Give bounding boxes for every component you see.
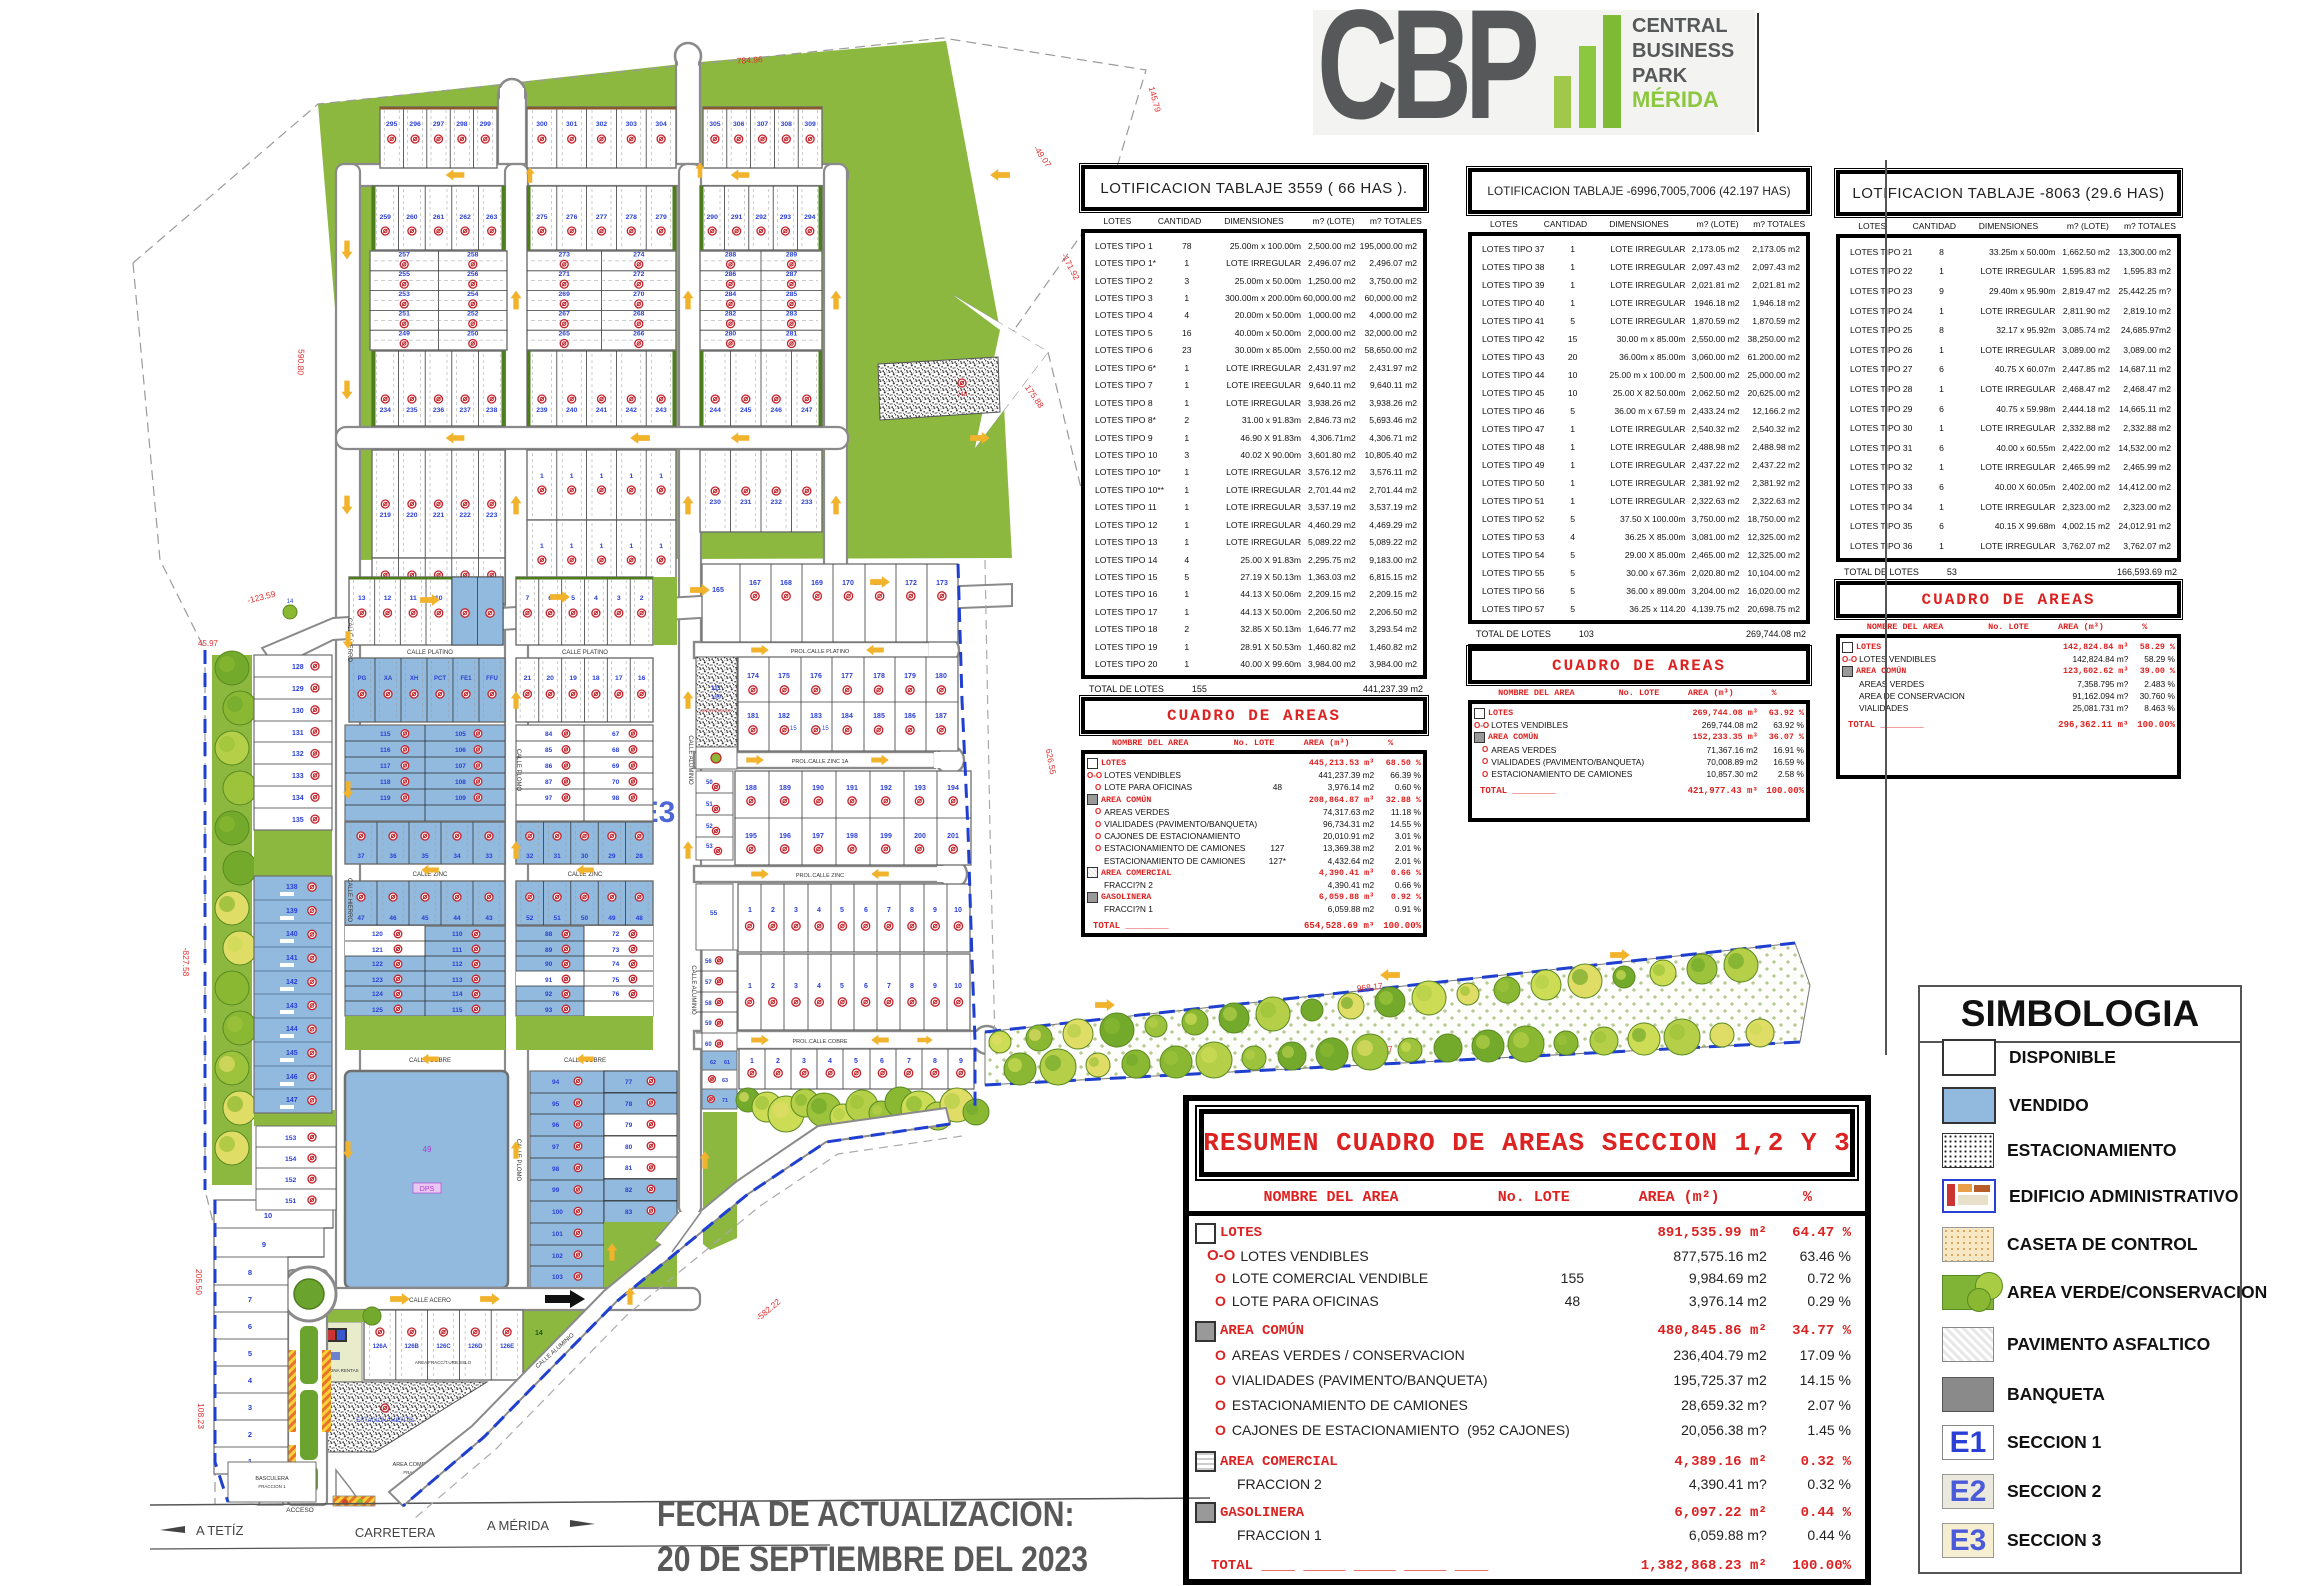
svg-text:51: 51 xyxy=(553,915,561,922)
svg-text:293: 293 xyxy=(780,214,792,221)
svg-text:1: 1 xyxy=(748,907,752,914)
svg-text:151: 151 xyxy=(285,1198,297,1205)
svg-text:276: 276 xyxy=(566,214,578,221)
svg-text:93: 93 xyxy=(545,1007,553,1014)
svg-text:105: 105 xyxy=(455,731,466,738)
svg-text:81: 81 xyxy=(625,1165,633,1172)
svg-text:248: 248 xyxy=(957,391,968,398)
svg-text:183: 183 xyxy=(810,713,822,720)
svg-text:261: 261 xyxy=(433,214,445,221)
svg-text:255: 255 xyxy=(399,271,411,278)
svg-text:283: 283 xyxy=(786,311,798,318)
svg-text:FE1: FE1 xyxy=(460,676,472,682)
svg-text:BASCULERA: BASCULERA xyxy=(255,1476,289,1482)
svg-text:CALLE PLATINO: CALLE PLATINO xyxy=(407,650,453,656)
svg-text:89: 89 xyxy=(545,947,553,954)
svg-text:135: 135 xyxy=(292,817,304,824)
svg-text:31: 31 xyxy=(553,853,561,860)
svg-text:175: 175 xyxy=(778,673,790,680)
svg-text:6: 6 xyxy=(880,1058,884,1065)
svg-text:265: 265 xyxy=(559,331,571,338)
svg-text:243: 243 xyxy=(655,407,667,414)
svg-text:252: 252 xyxy=(467,311,479,318)
svg-text:92: 92 xyxy=(545,991,553,998)
svg-text:1: 1 xyxy=(629,473,633,480)
svg-text:125: 125 xyxy=(372,1007,383,1014)
svg-text:59: 59 xyxy=(705,1021,712,1027)
svg-text:CALLE ZINC: CALLE ZINC xyxy=(413,872,448,878)
svg-text:237: 237 xyxy=(459,407,471,414)
svg-text:35: 35 xyxy=(421,853,429,860)
svg-text:75: 75 xyxy=(612,977,620,984)
svg-text:128: 128 xyxy=(292,664,304,671)
svg-text:8: 8 xyxy=(933,1058,937,1065)
svg-text:78: 78 xyxy=(625,1101,633,1108)
svg-text:PROL.CALLE ZINC 1A: PROL.CALLE ZINC 1A xyxy=(792,759,849,765)
svg-text:242: 242 xyxy=(626,407,638,414)
svg-text:250: 250 xyxy=(467,331,479,338)
svg-text:269: 269 xyxy=(559,291,571,298)
svg-text:126A: 126A xyxy=(373,1344,388,1350)
svg-text:CALLE HIERRO: CALLE HIERRO xyxy=(346,878,352,922)
svg-text:1: 1 xyxy=(659,473,663,480)
svg-text:2: 2 xyxy=(776,1058,780,1065)
svg-text:273: 273 xyxy=(559,251,571,258)
svg-text:176: 176 xyxy=(810,673,822,680)
svg-text:1: 1 xyxy=(600,543,604,550)
svg-text:186: 186 xyxy=(904,713,916,720)
svg-text:188: 188 xyxy=(745,785,757,792)
svg-text:14: 14 xyxy=(535,1330,543,1337)
svg-text:17: 17 xyxy=(615,675,623,682)
svg-text:56: 56 xyxy=(705,959,712,965)
svg-text:198: 198 xyxy=(846,833,858,840)
svg-text:49: 49 xyxy=(423,1145,432,1154)
svg-text:30: 30 xyxy=(581,853,589,860)
svg-text:49: 49 xyxy=(608,915,616,922)
svg-text:7: 7 xyxy=(907,1058,911,1065)
svg-text:ACCESO: ACCESO xyxy=(286,1507,313,1514)
svg-text:34: 34 xyxy=(453,853,461,860)
svg-text:201: 201 xyxy=(947,833,959,840)
svg-text:294: 294 xyxy=(804,214,816,221)
svg-text:36: 36 xyxy=(389,853,397,860)
svg-text:PCT: PCT xyxy=(434,676,446,682)
svg-text:220: 220 xyxy=(406,512,418,519)
svg-text:CALLE PLOMO: CALLE PLOMO xyxy=(515,749,521,792)
svg-text:244: 244 xyxy=(710,407,722,414)
svg-text:14: 14 xyxy=(287,599,294,605)
svg-text:260: 260 xyxy=(406,214,418,221)
svg-text:108.23: 108.23 xyxy=(196,1403,206,1429)
svg-text:297: 297 xyxy=(433,121,445,128)
svg-text:9: 9 xyxy=(959,1058,963,1065)
svg-text:PG: PG xyxy=(358,676,367,682)
svg-text:67: 67 xyxy=(612,731,620,738)
svg-text:173: 173 xyxy=(936,580,948,587)
svg-text:3: 3 xyxy=(794,907,798,914)
svg-text:784.96: 784.96 xyxy=(736,54,763,66)
svg-text:60: 60 xyxy=(705,1042,712,1048)
svg-text:278: 278 xyxy=(626,214,638,221)
svg-text:10: 10 xyxy=(954,983,962,990)
svg-text:-827.58: -827.58 xyxy=(181,948,191,977)
svg-text:5: 5 xyxy=(571,595,575,602)
svg-text:4: 4 xyxy=(594,595,598,602)
svg-text:133: 133 xyxy=(292,773,304,780)
svg-text:280: 280 xyxy=(725,331,737,338)
svg-text:235: 235 xyxy=(406,407,418,414)
svg-text:52: 52 xyxy=(526,915,534,922)
svg-text:154: 154 xyxy=(285,1156,297,1163)
svg-text:299: 299 xyxy=(480,121,492,128)
svg-text:7: 7 xyxy=(248,1295,252,1304)
svg-text:58: 58 xyxy=(705,1001,712,1007)
svg-text:287: 287 xyxy=(786,271,798,278)
svg-text:167: 167 xyxy=(749,580,761,587)
svg-text:192: 192 xyxy=(880,785,892,792)
svg-text:101: 101 xyxy=(552,1231,563,1238)
svg-text:295: 295 xyxy=(386,121,398,128)
svg-text:4: 4 xyxy=(817,983,821,990)
svg-text:53: 53 xyxy=(706,844,713,850)
svg-text:97: 97 xyxy=(545,795,553,802)
svg-text:138: 138 xyxy=(286,884,298,891)
svg-text:130: 130 xyxy=(292,708,304,715)
svg-text:286: 286 xyxy=(725,271,737,278)
svg-text:1: 1 xyxy=(600,473,604,480)
svg-text:47: 47 xyxy=(357,915,365,922)
svg-text:170: 170 xyxy=(842,580,854,587)
svg-text:111: 111 xyxy=(711,685,722,692)
svg-text:1: 1 xyxy=(629,543,633,550)
svg-text:241: 241 xyxy=(596,407,608,414)
svg-text:18: 18 xyxy=(592,675,600,682)
svg-text:1: 1 xyxy=(748,983,752,990)
svg-text:3: 3 xyxy=(617,595,621,602)
svg-text:251: 251 xyxy=(399,311,411,318)
svg-text:309: 309 xyxy=(804,121,816,128)
svg-text:107: 107 xyxy=(455,763,466,770)
svg-text:139: 139 xyxy=(286,908,298,915)
svg-text:177: 177 xyxy=(841,673,853,680)
svg-text:79: 79 xyxy=(625,1122,633,1129)
svg-text:80: 80 xyxy=(625,1144,633,1151)
svg-text:2: 2 xyxy=(771,983,775,990)
svg-text:279: 279 xyxy=(655,214,667,221)
svg-text:50: 50 xyxy=(581,915,589,922)
svg-text:8: 8 xyxy=(910,907,914,914)
svg-text:6: 6 xyxy=(248,1322,252,1331)
svg-text:6: 6 xyxy=(864,907,868,914)
svg-text:8: 8 xyxy=(910,983,914,990)
svg-text:103: 103 xyxy=(552,1274,563,1281)
svg-text:292: 292 xyxy=(755,214,767,221)
svg-text:62: 62 xyxy=(710,1060,716,1066)
svg-text:126E: 126E xyxy=(500,1344,514,1350)
svg-text:71: 71 xyxy=(722,1098,728,1104)
svg-text:73: 73 xyxy=(612,947,620,954)
svg-text:3: 3 xyxy=(248,1403,252,1412)
svg-text:219: 219 xyxy=(380,512,392,519)
svg-text:230: 230 xyxy=(710,499,722,506)
svg-text:205.50: 205.50 xyxy=(194,1269,204,1295)
svg-text:20: 20 xyxy=(546,675,554,682)
svg-text:33: 33 xyxy=(485,853,493,860)
svg-text:13: 13 xyxy=(358,595,366,602)
svg-text:189: 189 xyxy=(779,785,791,792)
svg-text:123: 123 xyxy=(372,977,383,984)
svg-text:284: 284 xyxy=(725,291,737,298)
svg-text:48: 48 xyxy=(636,915,644,922)
svg-text:63: 63 xyxy=(722,1078,728,1084)
svg-text:153: 153 xyxy=(285,1135,297,1142)
svg-text:111: 111 xyxy=(452,947,463,954)
svg-text:221: 221 xyxy=(433,512,445,519)
svg-text:16: 16 xyxy=(638,675,646,682)
svg-text:196: 196 xyxy=(779,833,791,840)
svg-text:12: 12 xyxy=(384,595,392,602)
svg-text:CARRETERA: CARRETERA xyxy=(355,1525,436,1540)
svg-text:134: 134 xyxy=(292,795,304,802)
svg-text:83: 83 xyxy=(625,1209,633,1216)
svg-text:1: 1 xyxy=(540,543,544,550)
svg-text:285: 285 xyxy=(786,291,798,298)
svg-text:191: 191 xyxy=(846,785,858,792)
svg-text:290: 290 xyxy=(707,214,719,221)
svg-text:102: 102 xyxy=(552,1253,563,1260)
svg-text:223: 223 xyxy=(486,512,498,519)
svg-text:109: 109 xyxy=(455,795,466,802)
svg-text:6: 6 xyxy=(864,983,868,990)
svg-text:263: 263 xyxy=(486,214,498,221)
svg-text:246: 246 xyxy=(771,407,783,414)
svg-text:15: 15 xyxy=(790,726,797,732)
svg-text:1: 1 xyxy=(540,473,544,480)
svg-text:4: 4 xyxy=(828,1058,832,1065)
svg-text:32: 32 xyxy=(526,853,534,860)
svg-text:1: 1 xyxy=(570,473,574,480)
svg-text:185: 185 xyxy=(873,713,885,720)
svg-text:45: 45 xyxy=(421,915,429,922)
svg-text:72: 72 xyxy=(612,931,620,938)
svg-text:110: 110 xyxy=(452,931,463,938)
svg-text:200: 200 xyxy=(914,833,926,840)
svg-text:124: 124 xyxy=(372,991,383,998)
svg-text:288: 288 xyxy=(725,251,737,258)
svg-text:2: 2 xyxy=(248,1430,252,1439)
svg-text:10: 10 xyxy=(264,1211,272,1220)
svg-text:CALLE ACERO: CALLE ACERO xyxy=(409,1298,451,1304)
svg-text:122: 122 xyxy=(372,961,383,968)
svg-text:21: 21 xyxy=(524,675,532,682)
svg-text:84: 84 xyxy=(545,731,553,738)
svg-text:55: 55 xyxy=(710,910,718,917)
svg-text:247: 247 xyxy=(801,407,813,414)
svg-text:222: 222 xyxy=(459,512,471,519)
svg-text:CALLE ZINC: CALLE ZINC xyxy=(568,872,603,878)
svg-text:296: 296 xyxy=(409,121,421,128)
svg-text:43: 43 xyxy=(485,915,493,922)
svg-text:172: 172 xyxy=(905,580,917,587)
svg-text:178: 178 xyxy=(873,673,885,680)
svg-text:FFU: FFU xyxy=(486,676,498,682)
svg-text:112: 112 xyxy=(452,961,463,968)
svg-text:182: 182 xyxy=(778,713,790,720)
svg-text:119: 119 xyxy=(380,795,391,802)
svg-text:281: 281 xyxy=(786,331,798,338)
svg-text:115: 115 xyxy=(380,731,391,738)
svg-text:29: 29 xyxy=(608,853,616,860)
svg-text:XH: XH xyxy=(410,676,418,682)
svg-text:9: 9 xyxy=(933,983,937,990)
svg-text:306: 306 xyxy=(733,121,745,128)
svg-text:234: 234 xyxy=(380,407,392,414)
svg-text:268: 268 xyxy=(633,311,645,318)
svg-text:7: 7 xyxy=(887,907,891,914)
svg-text:90: 90 xyxy=(545,961,553,968)
svg-text:274: 274 xyxy=(633,251,645,258)
svg-text:142: 142 xyxy=(286,979,298,986)
svg-text:PROL.CALLE COBRE: PROL.CALLE COBRE xyxy=(792,1039,847,1045)
svg-text:15: 15 xyxy=(822,726,829,732)
svg-text:152: 152 xyxy=(285,1177,297,1184)
svg-text:254: 254 xyxy=(467,291,479,298)
svg-text:145: 145 xyxy=(286,1050,298,1057)
svg-text:190: 190 xyxy=(812,785,824,792)
svg-text:106: 106 xyxy=(455,747,466,754)
svg-text:129: 129 xyxy=(292,686,304,693)
svg-text:98: 98 xyxy=(612,795,620,802)
svg-text:5: 5 xyxy=(840,907,844,914)
svg-text:116: 116 xyxy=(380,747,391,754)
svg-text:99: 99 xyxy=(552,1187,560,1194)
svg-text:95: 95 xyxy=(552,1101,560,1108)
svg-text:258: 258 xyxy=(467,251,479,258)
svg-text:291: 291 xyxy=(731,214,743,221)
svg-text:275: 275 xyxy=(536,214,548,221)
svg-text:3: 3 xyxy=(794,983,798,990)
svg-text:5: 5 xyxy=(854,1058,858,1065)
svg-text:CALLE ALUMINIO: CALLE ALUMINIO xyxy=(690,965,696,1015)
svg-text:245: 245 xyxy=(740,407,752,414)
svg-text:289: 289 xyxy=(786,251,798,258)
svg-text:9: 9 xyxy=(262,1240,266,1249)
svg-text:19: 19 xyxy=(569,675,577,682)
svg-text:233: 233 xyxy=(801,499,813,506)
svg-text:8: 8 xyxy=(248,1268,252,1277)
svg-text:305: 305 xyxy=(709,121,721,128)
svg-text:2: 2 xyxy=(640,595,644,602)
svg-text:PROL.CALLE ZINC: PROL.CALLE ZINC xyxy=(796,873,844,879)
svg-text:298: 298 xyxy=(456,121,468,128)
svg-text:270: 270 xyxy=(633,291,645,298)
svg-text:85: 85 xyxy=(545,747,553,754)
svg-text:147: 147 xyxy=(286,1097,298,1104)
svg-text:180: 180 xyxy=(935,673,947,680)
svg-text:1: 1 xyxy=(750,1058,754,1065)
svg-text:108: 108 xyxy=(455,779,466,786)
svg-text:68: 68 xyxy=(612,747,620,754)
svg-text:PROL.CALLE PLATINO: PROL.CALLE PLATINO xyxy=(791,649,850,655)
svg-text:199: 199 xyxy=(711,695,722,701)
svg-text:169: 169 xyxy=(811,580,823,587)
svg-text:304: 304 xyxy=(655,121,667,128)
svg-text:1: 1 xyxy=(570,543,574,550)
svg-text:69: 69 xyxy=(612,763,620,770)
svg-text:121: 121 xyxy=(372,947,383,954)
svg-text:9: 9 xyxy=(933,907,937,914)
svg-text:AREA FRACC/T.URB.SSLO: AREA FRACC/T.URB.SSLO xyxy=(415,1360,472,1365)
svg-text:10: 10 xyxy=(954,907,962,914)
svg-text:74: 74 xyxy=(612,961,620,968)
svg-text:590.80: 590.80 xyxy=(296,349,307,376)
svg-text:193: 193 xyxy=(914,785,926,792)
svg-text:2: 2 xyxy=(771,907,775,914)
svg-text:308: 308 xyxy=(781,121,793,128)
svg-text:114: 114 xyxy=(452,991,463,998)
svg-text:45.97: 45.97 xyxy=(198,639,219,648)
svg-text:238: 238 xyxy=(486,407,498,414)
svg-text:3: 3 xyxy=(802,1058,806,1065)
svg-text:98: 98 xyxy=(552,1166,560,1173)
svg-text:272: 272 xyxy=(633,271,645,278)
svg-text:120: 120 xyxy=(372,931,383,938)
svg-text:88: 88 xyxy=(545,931,553,938)
svg-text:AREA ESTACION: AREA ESTACION xyxy=(700,708,732,713)
svg-text:7: 7 xyxy=(526,595,530,602)
svg-text:168: 168 xyxy=(780,580,792,587)
svg-text:126D: 126D xyxy=(468,1344,483,1350)
svg-text:256: 256 xyxy=(467,271,479,278)
svg-text:231: 231 xyxy=(740,499,752,506)
svg-text:181: 181 xyxy=(747,713,759,720)
svg-text:301: 301 xyxy=(566,121,578,128)
svg-text:262: 262 xyxy=(459,214,471,221)
svg-text:143: 143 xyxy=(286,1003,298,1010)
svg-text:303: 303 xyxy=(626,121,638,128)
svg-text:239: 239 xyxy=(536,407,548,414)
svg-text:302: 302 xyxy=(596,121,608,128)
svg-text:113: 113 xyxy=(452,977,463,984)
svg-text:126C: 126C xyxy=(436,1344,451,1350)
svg-text:A MÉRIDA: A MÉRIDA xyxy=(487,1518,549,1533)
svg-text:61: 61 xyxy=(724,1060,730,1066)
svg-text:271: 271 xyxy=(559,271,571,278)
svg-text:259: 259 xyxy=(380,214,392,221)
svg-text:165: 165 xyxy=(712,587,724,594)
svg-text:266: 266 xyxy=(633,331,645,338)
svg-text:5: 5 xyxy=(248,1349,252,1358)
svg-text:1: 1 xyxy=(659,543,663,550)
svg-text:197: 197 xyxy=(812,833,824,840)
svg-text:XA: XA xyxy=(384,676,393,682)
svg-text:37: 37 xyxy=(357,853,365,860)
svg-text:44: 44 xyxy=(453,915,461,922)
svg-text:146: 146 xyxy=(286,1074,298,1081)
svg-text:46: 46 xyxy=(389,915,397,922)
svg-text:174: 174 xyxy=(747,673,759,680)
svg-text:94: 94 xyxy=(552,1079,560,1086)
svg-text:277: 277 xyxy=(596,214,608,221)
svg-text:70: 70 xyxy=(612,779,620,786)
svg-text:132: 132 xyxy=(292,751,304,758)
svg-text:4: 4 xyxy=(817,907,821,914)
svg-text:253: 253 xyxy=(399,291,411,298)
svg-text:232: 232 xyxy=(771,499,783,506)
svg-text:141: 141 xyxy=(286,955,298,962)
svg-text:115: 115 xyxy=(452,1007,463,1014)
